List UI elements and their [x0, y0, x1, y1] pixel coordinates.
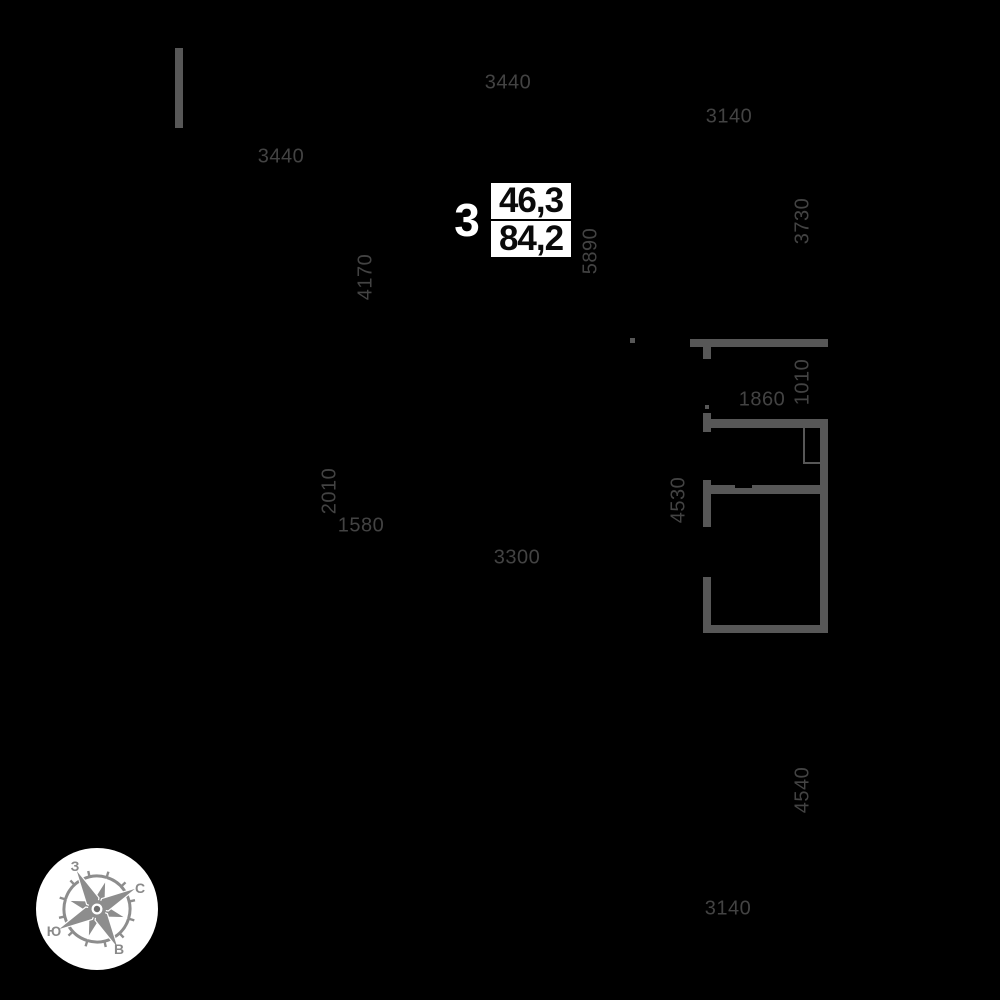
- dimension-label: 3440: [258, 146, 305, 169]
- dimension-label: 3440: [485, 72, 532, 95]
- apartment-living-area: 46,3: [491, 183, 571, 219]
- compass-rose: С В Ю З: [35, 847, 159, 971]
- compass-letter-west: З: [71, 858, 80, 874]
- wall-top-left-bar: [175, 48, 183, 128]
- wall-mid-horizontal: [703, 419, 828, 428]
- wall-bottom-horizontal: [703, 625, 828, 633]
- dimension-label: 4530: [668, 477, 691, 524]
- dimension-label: 3730: [792, 198, 815, 245]
- dimension-label: 3300: [494, 547, 541, 570]
- apartment-total-area: 84,2: [491, 221, 571, 257]
- wall-left-stub: [703, 428, 711, 432]
- wall-niche-left-line: [803, 428, 805, 464]
- wall-niche-bottom-line: [803, 462, 820, 464]
- dimension-label: 4170: [355, 254, 378, 301]
- compass-letter-south: Ю: [47, 923, 61, 939]
- wall-inner-horizontal: [703, 485, 820, 494]
- dimension-label: 2010: [319, 468, 342, 515]
- dimension-label: 1010: [792, 359, 815, 406]
- wall-door-jamb-top: [703, 347, 711, 359]
- dimension-label: 3140: [705, 898, 752, 921]
- wall-tick-mark: [630, 338, 635, 343]
- wall-upper-horizontal: [690, 339, 828, 347]
- apartment-area-box: 46,3 84,2: [491, 183, 571, 257]
- compass-letter-north: С: [135, 880, 145, 896]
- dimension-label: 1580: [338, 515, 385, 538]
- wall-opening-notch: [735, 485, 752, 488]
- floor-plan: 3 46,3 84,2: [0, 0, 1000, 1000]
- dimension-label: 5890: [580, 228, 603, 275]
- wall-door-jamb-tick: [705, 405, 709, 409]
- dimension-label: 3140: [706, 106, 753, 129]
- wall-right-vertical: [820, 419, 828, 633]
- dimension-label: 4540: [792, 767, 815, 814]
- compass-letter-east: В: [114, 941, 124, 957]
- apartment-number: 3: [443, 183, 491, 257]
- dimension-label: 1860: [739, 389, 786, 412]
- apartment-label: 3 46,3 84,2: [443, 183, 571, 257]
